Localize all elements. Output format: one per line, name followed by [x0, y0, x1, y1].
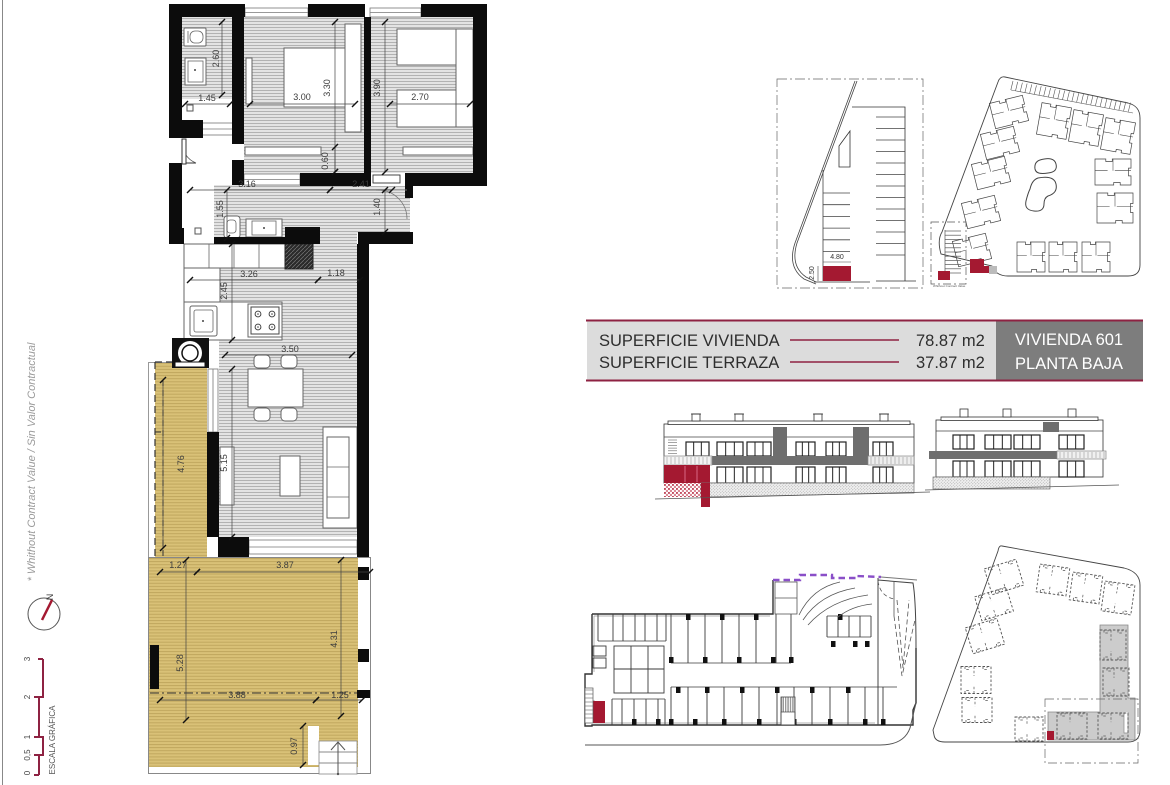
svg-text:2.60: 2.60 [211, 50, 221, 68]
svg-text:ESCALA GRÁFICA: ESCALA GRÁFICA [48, 705, 57, 775]
svg-text:0: 0 [23, 770, 32, 775]
svg-text:2.41: 2.41 [352, 179, 370, 189]
svg-text:5.28: 5.28 [175, 654, 185, 672]
svg-text:1.45: 1.45 [198, 93, 216, 103]
svg-text:4.31: 4.31 [329, 630, 339, 648]
svg-text:3: 3 [23, 656, 32, 661]
svg-text:1.25: 1.25 [331, 690, 349, 700]
svg-text:N: N [45, 594, 55, 601]
svg-text:SUPERFICIE TERRAZA: SUPERFICIE TERRAZA [599, 354, 779, 372]
svg-text:VIVIENDA 601: VIVIENDA 601 [1015, 331, 1123, 349]
svg-text:SUPERFICIE VIVIENDA: SUPERFICIE VIVIENDA [599, 332, 780, 350]
svg-text:PLANTA BAJA: PLANTA BAJA [1015, 355, 1123, 373]
svg-text:2.50: 2.50 [809, 266, 816, 280]
svg-text:5.15: 5.15 [219, 454, 229, 472]
svg-text:1: 1 [23, 734, 32, 739]
svg-text:1.40: 1.40 [372, 198, 382, 216]
svg-text:37.87 m2: 37.87 m2 [916, 354, 985, 372]
svg-text:3.26: 3.26 [240, 269, 258, 279]
svg-text:Whithout Contract Value: Whithout Contract Value [933, 284, 966, 288]
svg-text:4.80: 4.80 [830, 254, 844, 261]
svg-text:3.00: 3.00 [293, 92, 311, 102]
svg-text:3.87: 3.87 [276, 560, 294, 570]
svg-text:0.97: 0.97 [289, 737, 299, 755]
svg-text:1.18: 1.18 [327, 268, 345, 278]
svg-text:4.76: 4.76 [176, 455, 186, 473]
svg-text:2.45: 2.45 [219, 282, 229, 300]
svg-text:2.70: 2.70 [411, 92, 429, 102]
svg-text:78.87 m2: 78.87 m2 [916, 332, 985, 350]
svg-text:0,5: 0,5 [23, 749, 32, 761]
svg-text:3.16: 3.16 [238, 179, 256, 189]
svg-text:3.50: 3.50 [281, 344, 299, 354]
svg-text:* Whithout Contract Value / Si: * Whithout Contract Value / Sin Valor Co… [26, 342, 38, 581]
svg-text:2: 2 [23, 694, 32, 699]
svg-text:0.60: 0.60 [320, 152, 330, 170]
svg-text:1.55: 1.55 [215, 200, 225, 218]
svg-text:3.88: 3.88 [228, 690, 246, 700]
svg-text:3.90: 3.90 [372, 79, 382, 97]
svg-text:3.30: 3.30 [322, 79, 332, 97]
